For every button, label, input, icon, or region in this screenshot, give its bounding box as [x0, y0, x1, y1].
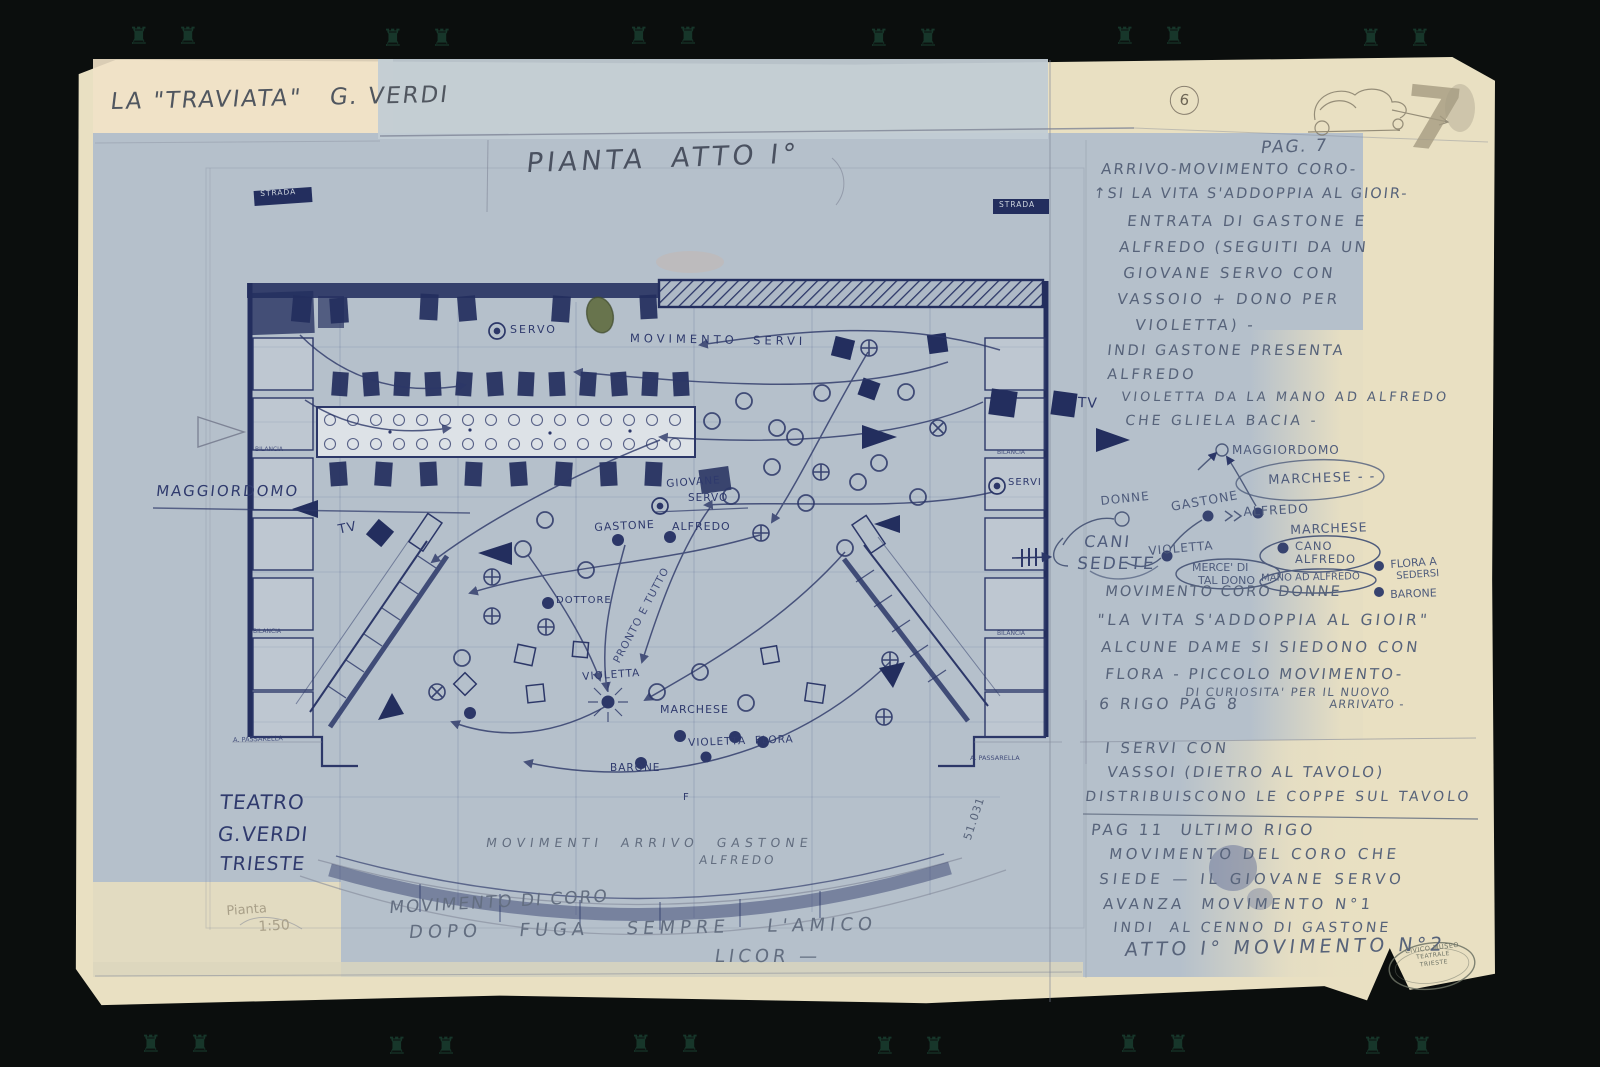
- sketch-label-mano: MANO AD ALFREDO: [1261, 572, 1360, 584]
- note-pag11-line4: AVANZA MOVIMENTO N°1: [1102, 897, 1374, 913]
- note-arrival-line4: ALFREDO (SEGUITI DA UN: [1118, 240, 1369, 256]
- note-pag11-line1: PAG 11 ULTIMO RIGO: [1090, 822, 1316, 838]
- giovane-servo-label-2: SERVO: [688, 493, 728, 504]
- note-presentation-line4: CHE GLIELA BACIA -: [1124, 414, 1319, 429]
- note-arrival-line6: VASSOIO + DONO PER: [1116, 292, 1341, 308]
- passarella-label-right: A. PASSARELLA: [970, 755, 1020, 762]
- movimento-servi-label: MOVIMENTO SERVI: [630, 332, 807, 347]
- crown-motif-icon: ♜ ♜: [140, 1030, 221, 1058]
- crown-motif-icon: ♜ ♜: [128, 22, 209, 50]
- sketch-label-maggiordomo: MAGGIORDOMO: [1232, 444, 1340, 457]
- passarella-label-left: A. PASSARELLA: [233, 735, 283, 744]
- note-pag11-line2: MOVIMENTO DEL CORO CHE: [1108, 847, 1400, 863]
- pencil-plan-note: Pianta: [226, 902, 267, 918]
- f-mark: F: [683, 793, 689, 804]
- crown-motif-icon: ♜ ♜: [382, 24, 463, 52]
- crown-motif-icon: ♜ ♜: [628, 22, 709, 50]
- note-servants-line2: VASSOI (DIETRO AL TAVOLO): [1106, 765, 1385, 781]
- crown-motif-icon: ♜ ♜: [630, 1030, 711, 1058]
- movimenti-arrivo-alfredo: ALFREDO: [698, 854, 777, 867]
- note-pag11-line3: SIEDE — IL GIOVANE SERVO: [1098, 872, 1405, 888]
- scale-note: 1:50: [258, 918, 290, 934]
- note-presentation-line2: ALFREDO: [1106, 368, 1197, 383]
- note-arrival-line3: ENTRATA DI GASTONE E: [1126, 214, 1368, 230]
- sketch-label-merce-1: MERCE' DI: [1192, 562, 1248, 574]
- sheet-number: 6: [1179, 92, 1191, 109]
- note-servants-line1: I SERVI CON: [1104, 741, 1229, 757]
- theater-name-line3: TRIESTE: [219, 855, 306, 875]
- note-pag11-line5: INDI AL CENNO DI GASTONE: [1112, 921, 1391, 936]
- theater-name-line2: G.VERDI: [217, 824, 310, 845]
- cyanotype-top-strip: [378, 59, 1048, 139]
- sketch-label-sedete: SEDETE: [1076, 556, 1156, 574]
- note-choir-line6: ARRIVATO -: [1329, 698, 1406, 710]
- sketch-label-barone: BARONE: [1390, 587, 1437, 600]
- crown-motif-icon: ♜ ♜: [868, 24, 949, 52]
- scanned-sheet: ♜ ♜ ♜ ♜ ♜ ♜ ♜ ♜ ♜ ♜ ♜ ♜ ♜ ♜ ♜ ♜ ♜ ♜ ♜ ♜ …: [0, 0, 1600, 1067]
- sketch-label-alfredo: ALFREDO: [1243, 502, 1309, 519]
- crown-motif-icon: ♜ ♜: [1360, 24, 1441, 52]
- note-choir-line7: 6 RIGO PAG 8: [1098, 696, 1240, 712]
- crown-motif-icon: ♜ ♜: [1114, 22, 1195, 50]
- bilancia-label-left-2: BILANCIA: [253, 629, 281, 635]
- theater-name-line1: TEATRO: [219, 792, 306, 813]
- bilancia-label-left-1: BILANCIA: [255, 447, 283, 453]
- note-choir-line1: MOVIMENTO CORO DONNE: [1104, 585, 1342, 600]
- sketch-label-marchese: MARCHESE: [1290, 520, 1368, 536]
- crown-motif-icon: ♜ ♜: [874, 1032, 955, 1060]
- crown-motif-icon: ♜ ♜: [1362, 1032, 1443, 1060]
- maggiordomo-label: MAGGIORDOMO: [155, 484, 300, 500]
- note-arrival-line7: VIOLETTA) -: [1134, 318, 1256, 334]
- sketch-label-cano: CANO: [1295, 540, 1333, 552]
- corner-page-number: 7: [1399, 72, 1468, 168]
- bilancia-label-right-1: BILANCIA: [997, 450, 1025, 456]
- dottore-label: DOTTORE: [556, 596, 612, 607]
- crown-motif-icon: ♜ ♜: [1118, 1030, 1199, 1058]
- movimenti-arrivo-note: MOVIMENTI ARRIVO GASTONE: [485, 836, 813, 849]
- note-arrival-line5: GIOVANE SERVO CON: [1122, 266, 1336, 282]
- barone-label: BARONE: [610, 763, 660, 774]
- note-choir-line3: ALCUNE DAME SI SIEDONO CON: [1100, 640, 1421, 656]
- note-servants-line3: DISTRIBUISCONO LE COPPE SUL TAVOLO: [1084, 790, 1472, 805]
- tv-label-right: TV: [1077, 396, 1098, 411]
- crown-motif-icon: ♜ ♜: [386, 1032, 467, 1060]
- note-presentation-line3: VIOLETTA DA LA MANO AD ALFREDO: [1121, 391, 1450, 405]
- servi-label: SERVI: [1008, 478, 1042, 489]
- strada-label-right: STRADA: [999, 201, 1035, 209]
- note-choir-line4: FLORA - PICCOLO MOVIMENTO-: [1104, 667, 1404, 683]
- page-ref: PAG. 7: [1259, 138, 1329, 158]
- note-choir-line2: "LA VITA S'ADDOPPIA AL GIOIR": [1096, 612, 1430, 628]
- note-arrival-line2: ↑SI LA VITA S'ADDOPPIA AL GIOIR-: [1092, 187, 1409, 202]
- bilancia-label-right-2: BILANCIA: [997, 631, 1025, 637]
- cream-bottom-strip: [93, 962, 1083, 977]
- sketch-label-cani: CANI: [1083, 534, 1132, 551]
- marchese-label: MARCHESE: [660, 704, 729, 716]
- note-presentation-line1: INDI GASTONE PRESENTA: [1106, 344, 1345, 359]
- note-arrival-line1: ARRIVO-MOVIMENTO CORO-: [1100, 162, 1358, 178]
- sketch-label-cano-alfredo: ALFREDO: [1295, 553, 1356, 565]
- servo-label: SERVO: [510, 324, 557, 336]
- alfredo-label: ALFREDO: [672, 521, 731, 533]
- licor-note: LICOR —: [713, 948, 822, 967]
